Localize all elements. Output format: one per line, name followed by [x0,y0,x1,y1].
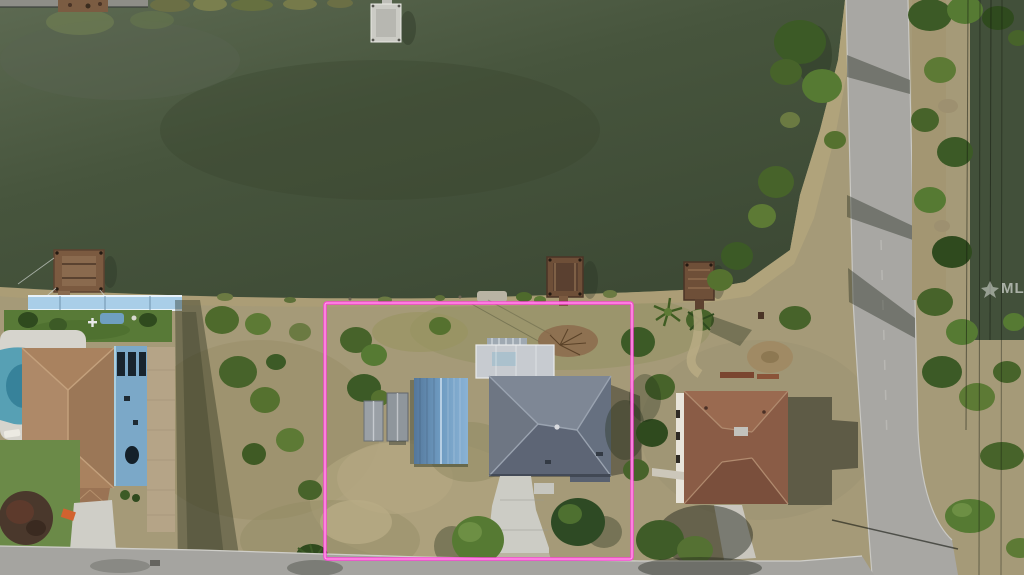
palmetto-clump [980,442,1024,470]
skylight [734,427,748,436]
canal-water [0,0,845,302]
blue-pergola-roof [28,295,182,311]
shed-2 [387,393,408,445]
boat-dock [58,0,108,12]
palmetto-clump [945,499,995,533]
shed-1 [364,401,383,441]
mulch-garden [0,491,53,545]
aerial-photo: MLS [0,0,1024,575]
aerial-photo-stage: MLS [0,0,1024,575]
left-house-blue-deck [114,346,147,486]
mls-watermark-text: MLS [1001,280,1024,297]
paver-driveway [147,347,175,532]
concrete-driveway [70,500,116,550]
blue-metal-garage [410,378,468,467]
right-house-roof [676,391,788,504]
